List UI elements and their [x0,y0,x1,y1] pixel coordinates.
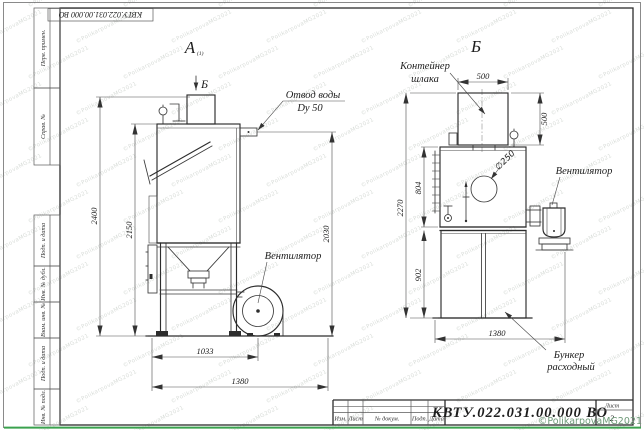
front-foot-left [156,331,168,336]
dim-nozzle-diameter: ∅250 [494,149,518,173]
margin-label-sprav-n: Справ. № [40,114,47,139]
side-view: Б [395,37,612,373]
dim-side-total-width: 1380 [489,328,507,338]
margin-label-vzam-inv: Взам. инв. № [40,303,47,337]
front-view-label: А [184,38,196,57]
side-fan-label: Вентилятор [556,166,613,177]
front-door-handle [150,274,153,279]
bunker-label-1: Бункер [553,350,585,361]
dim-side-cabinet-height: 902 [413,268,423,282]
front-view-dimensions: 2400 2150 2030 1033 1380 [89,97,336,391]
dim-front-body-height: 2150 [124,221,134,239]
drawing-canvas: Перв. примен. Справ. № Подп. и дата Инв.… [0,0,644,430]
side-fan-flange [530,206,540,226]
front-view: 2400 2150 2030 1033 1380 [89,38,345,391]
drawing-sheet: ©PolikarpovaMG2021©PolikarpovaMG2021©Pol… [0,0,644,430]
dim-front-total-height: 2400 [89,207,99,225]
sheet-frame [4,3,641,428]
slag-container-label-2: шлака [411,74,439,85]
dim-container-height: 500 [539,112,549,126]
front-fan-leader [258,262,267,303]
slag-container-label-1: Контейнер [399,61,450,72]
side-view-annotations: Контейнер шлака Вентилятор Бункер расход… [399,61,612,373]
front-cabinet [157,124,240,243]
copyright-watermark: ©PolikarpovaMG2021 [538,416,642,427]
margin-label-inv-dubl: Инв. № дубл. [40,267,47,302]
side-nozzle-circle [471,176,497,202]
top-stamp-number: КВТУ.022.031.00.000 ВО [59,10,144,19]
titleblock-header-dokum: № докум. [374,416,400,423]
side-slag-container [458,93,508,145]
titleblock-header-podp: Подп. [411,416,427,423]
front-view-label-note: (1) [197,50,204,57]
titleblock-header-list: Лист [347,416,363,423]
front-view-outline [144,95,333,337]
front-chimney [187,95,215,124]
top-stamp: КВТУ.022.031.00.000 ВО [48,9,153,22]
front-fan-label: Вентилятор [265,251,322,262]
side-view-outline: Б [432,37,573,318]
dim-side-total-height: 2270 [395,199,405,217]
bunker-label-2: расходный [546,362,595,373]
front-view-annotations: А (1) Б Отвод воды Dy 50 Вентилятор [184,38,345,303]
side-view-label: Б [470,37,481,56]
dim-front-outlet-height: 2030 [321,225,331,243]
side-bunker-cabinet [441,231,526,319]
front-foot-right [229,331,241,336]
outer-border [4,3,641,428]
margin-label-perv-primen: Перв. примен. [40,30,47,68]
titleblock-header-izm: Изм. [333,416,346,423]
side-view-dimensions: 500 500 2270 804 902 [395,71,565,343]
dim-container-width: 500 [477,71,491,81]
front-pipe [170,104,179,121]
water-outlet-label-2: Dy 50 [296,103,323,114]
section-arrow-label: Б [200,77,208,91]
margin-columns: Перв. примен. Справ. № Подп. и дата Инв.… [34,8,60,425]
front-lower-door [148,245,157,293]
margin-label-inv-podl: Инв. № подл. [40,390,47,425]
front-hopper [168,247,190,271]
margin-label-podp-data-1: Подп. и дата [40,223,47,259]
front-upper-door [149,196,157,243]
margin-label-podp-data-2: Подп. и дата [40,346,47,382]
water-outlet-label-1: Отвод воды [286,90,341,101]
side-inlet-stub [449,133,457,145]
front-gauge-icon [159,107,167,115]
titleblock-sheet-label: Лист [604,403,620,410]
dim-front-total-width: 1380 [232,376,250,386]
dim-side-body-height: 804 [413,181,423,195]
side-gauge-icon [510,131,518,139]
side-fan-body [543,208,565,237]
dim-front-fan-offset: 1033 [197,346,214,356]
side-fan-leader [552,177,560,205]
